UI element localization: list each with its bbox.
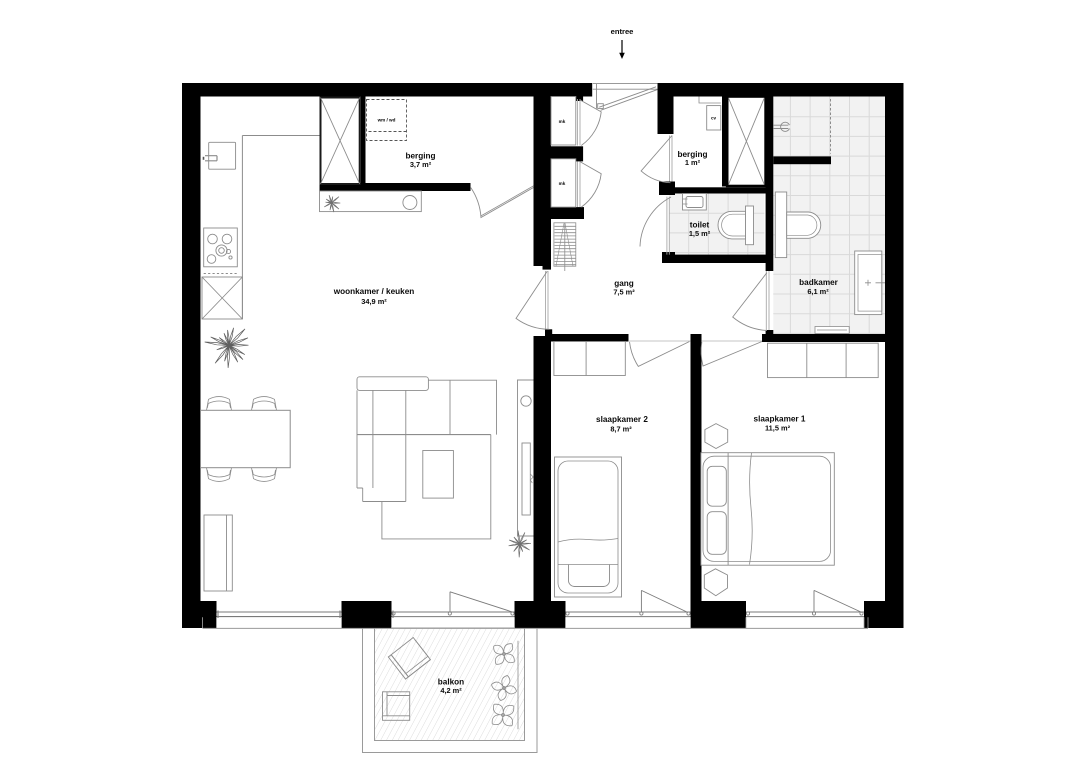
svg-text:woonkamer / keuken: woonkamer / keuken (333, 287, 415, 296)
svg-text:3,7 m²: 3,7 m² (410, 160, 432, 169)
svg-text:1,5 m²: 1,5 m² (689, 229, 711, 238)
svg-text:11,5 m²: 11,5 m² (765, 424, 791, 433)
svg-text:entree: entree (611, 27, 634, 36)
svg-text:mk: mk (559, 181, 566, 186)
svg-text:cv: cv (711, 116, 717, 121)
svg-text:7,5 m²: 7,5 m² (613, 288, 635, 297)
svg-text:34,9 m²: 34,9 m² (361, 297, 387, 306)
svg-text:1 m²: 1 m² (685, 158, 701, 167)
svg-text:slaapkamer 1: slaapkamer 1 (754, 414, 806, 423)
svg-text:badkamer: badkamer (799, 278, 838, 287)
svg-text:8,7 m²: 8,7 m² (610, 424, 632, 433)
svg-text:wm / wd: wm / wd (377, 118, 396, 123)
svg-text:mk: mk (559, 119, 566, 124)
svg-text:6,1 m²: 6,1 m² (807, 287, 829, 296)
svg-text:slaapkamer 2: slaapkamer 2 (596, 415, 648, 424)
svg-text:4,2 m²: 4,2 m² (440, 686, 462, 695)
